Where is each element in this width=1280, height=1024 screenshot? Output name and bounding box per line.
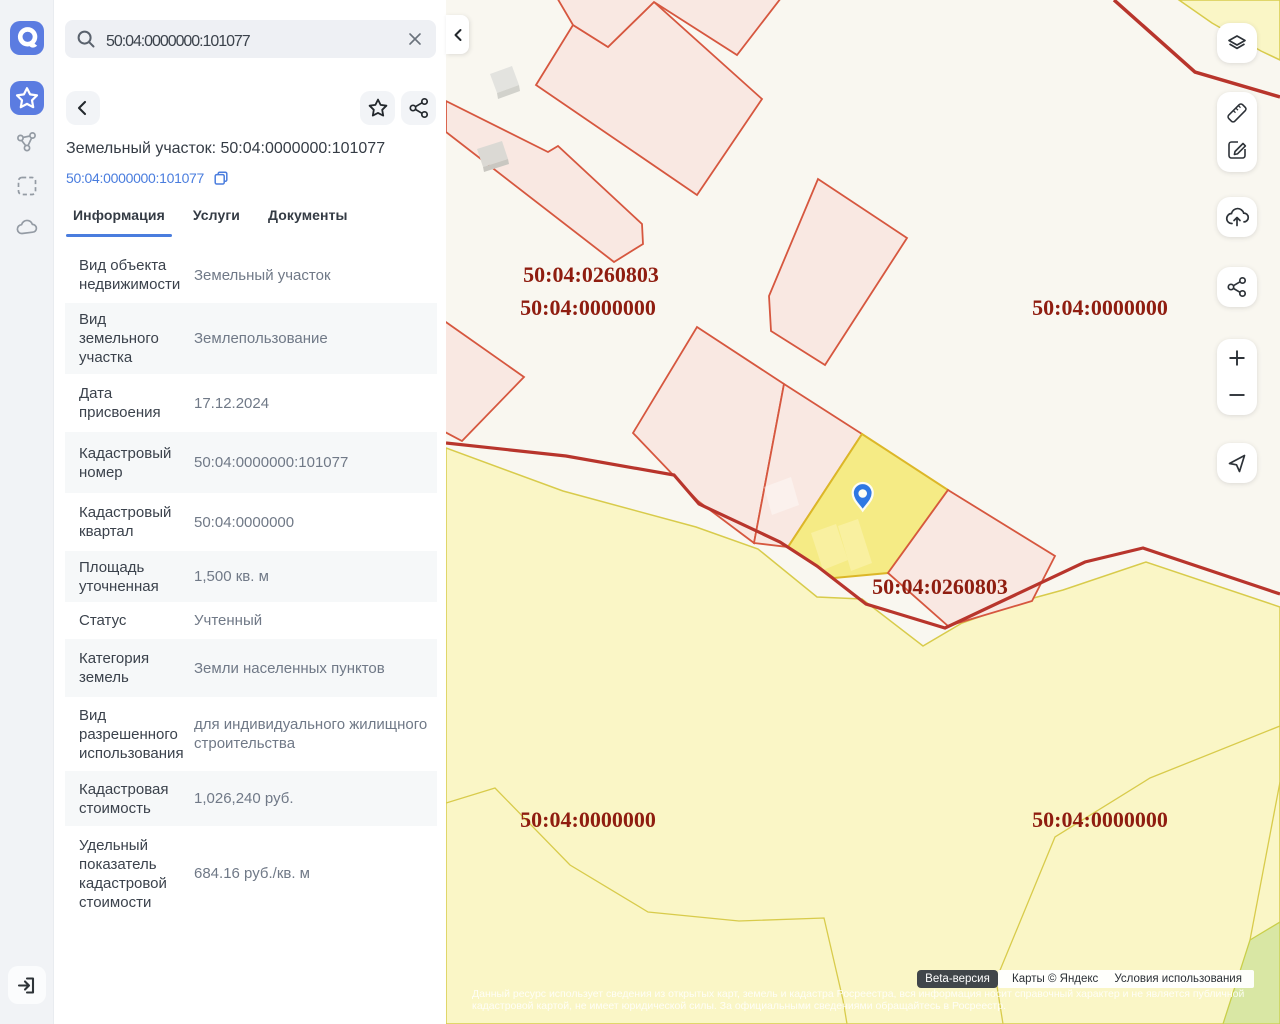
svg-text:50:04:0000000: 50:04:0000000 xyxy=(1032,295,1168,320)
svg-text:50:04:0000000: 50:04:0000000 xyxy=(520,807,656,832)
svg-text:50:04:0000000: 50:04:0000000 xyxy=(520,295,656,320)
svg-text:50:04:0000000: 50:04:0000000 xyxy=(1032,807,1168,832)
svg-text:50:04:0260803: 50:04:0260803 xyxy=(872,574,1008,599)
svg-text:50:04:0260803: 50:04:0260803 xyxy=(523,262,659,287)
